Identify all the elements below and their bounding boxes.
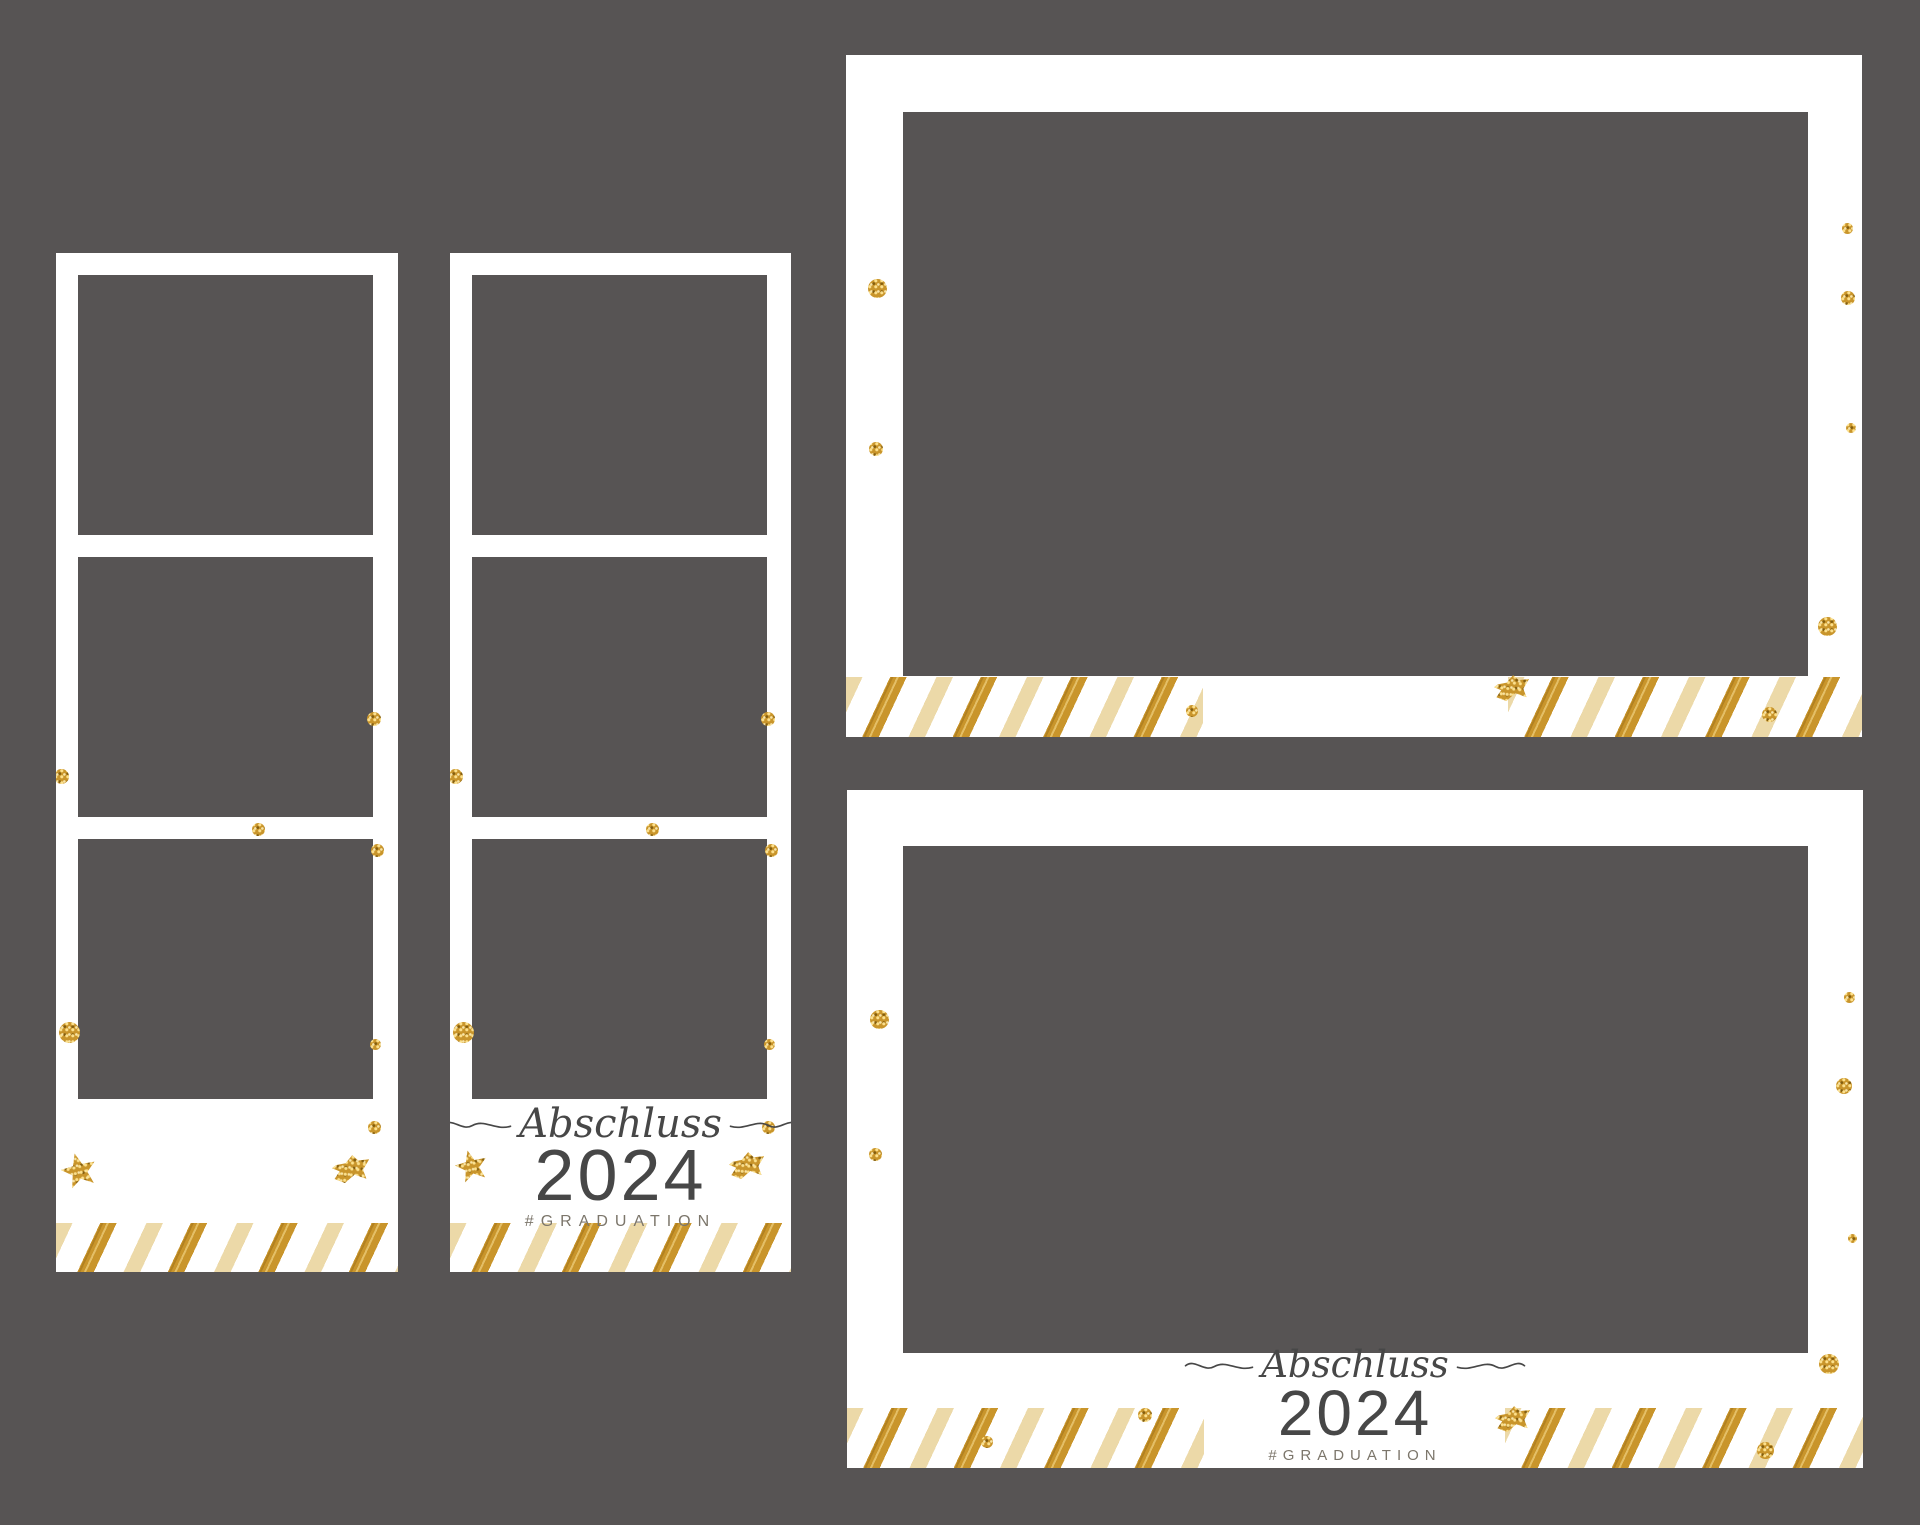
dot-decoration (868, 279, 887, 298)
flourish-right-icon (1456, 1354, 1526, 1376)
template-label: Abschluss 2024 #GRADUATION (847, 1342, 1863, 1464)
dot-decoration (1841, 291, 1855, 305)
dot-decoration (453, 1022, 474, 1043)
landscape-template-labeled: Abschluss 2024 #GRADUATION (847, 790, 1863, 1468)
template-label: Abschluss 2024 #GRADUATION (450, 1099, 791, 1231)
dot-decoration (764, 1039, 775, 1050)
dot-decoration (870, 1010, 889, 1029)
photo-slot[interactable] (78, 275, 373, 535)
dot-decoration (1818, 617, 1837, 636)
label-hashtag: #GRADUATION (847, 1447, 1863, 1464)
dot-decoration (1844, 992, 1855, 1003)
photo-slot[interactable] (472, 275, 767, 535)
stripe-band-decoration (56, 1223, 398, 1272)
dot-decoration (450, 769, 463, 784)
dot-decoration (1846, 423, 1856, 433)
dot-decoration (252, 823, 265, 836)
flourish-right-icon (729, 1113, 791, 1135)
dot-decoration (370, 1039, 381, 1050)
landscape-template-blank (846, 55, 1862, 737)
dot-decoration (646, 823, 659, 836)
photo-slot[interactable] (903, 112, 1808, 676)
dot-decoration (1842, 223, 1853, 234)
photo-slot[interactable] (78, 557, 373, 817)
photo-slot[interactable] (472, 557, 767, 817)
dot-decoration (869, 1148, 882, 1161)
photo-slot[interactable] (78, 839, 373, 1099)
design-canvas: Abschluss 2024 #GRADUATION Abschluss 202… (0, 0, 1920, 1525)
photo-strip-template-blank (56, 253, 398, 1272)
dot-decoration (1762, 707, 1777, 722)
dot-decoration (765, 844, 778, 857)
photo-slot[interactable] (903, 846, 1808, 1353)
dot-decoration (59, 1022, 80, 1043)
dot-decoration (368, 1121, 381, 1134)
dot-decoration (1836, 1078, 1852, 1094)
label-year: 2024 (450, 1142, 791, 1210)
star-decoration (57, 1149, 101, 1193)
dot-decoration (869, 442, 883, 456)
label-hashtag: #GRADUATION (450, 1213, 791, 1231)
dot-decoration (367, 712, 381, 726)
dot-decoration (56, 769, 69, 784)
stripe-band-decoration (1508, 677, 1862, 737)
dot-decoration (761, 712, 775, 726)
stripe-band-decoration (846, 677, 1203, 737)
bow-decoration (331, 1153, 370, 1186)
photo-strip-template-labeled: Abschluss 2024 #GRADUATION (450, 253, 791, 1272)
flourish-left-icon (450, 1113, 512, 1135)
dot-decoration (1848, 1234, 1857, 1243)
dot-decoration (1186, 705, 1198, 717)
flourish-left-icon (1184, 1354, 1254, 1376)
photo-slot[interactable] (472, 839, 767, 1099)
dot-decoration (371, 844, 384, 857)
label-year: 2024 (847, 1383, 1863, 1444)
